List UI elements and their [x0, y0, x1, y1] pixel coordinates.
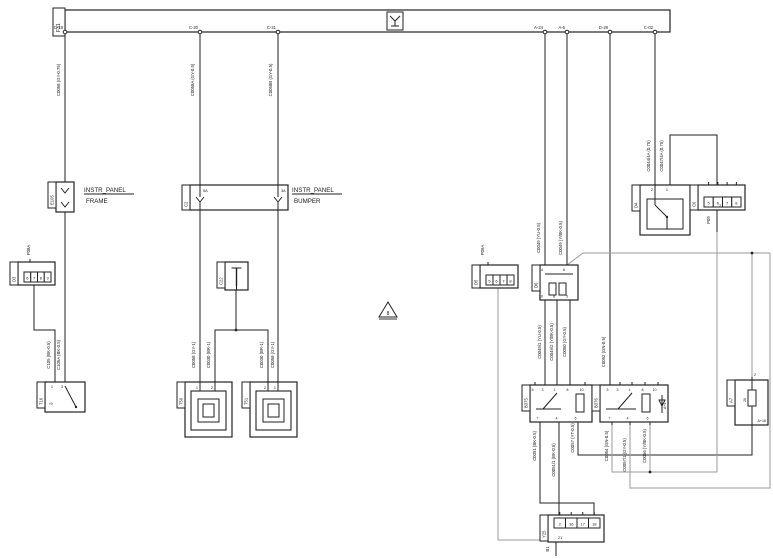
pin-number: 5	[532, 388, 534, 392]
pin-number: 2	[651, 188, 653, 192]
instr-panel-location: BUMPER	[294, 198, 321, 205]
component-label-t16: T16	[39, 397, 44, 405]
pin-number: 4	[541, 268, 543, 272]
wire-code-label: C105A (BK-0.5)	[56, 339, 61, 370]
pin-number: 1	[51, 385, 53, 389]
bus-pin-label: C-19	[54, 25, 64, 30]
wire-code-label: C105 (BK-0.5)	[46, 341, 51, 369]
bus-pin-label: D-28	[599, 25, 609, 30]
wire-code-label: C0057 (YT-0.5)	[570, 423, 575, 453]
pin-number: 1	[554, 388, 556, 392]
wire-code-label: C0051/1 (BK-0.5)	[551, 443, 556, 477]
component-label-b375-relay: B375	[524, 398, 529, 408]
wire-junction	[751, 252, 754, 255]
wire-code-label: C0049/2 (Y/BK-0.5)	[549, 323, 554, 361]
bus-pin-label: A-24	[534, 25, 544, 30]
reference-triangle-number: 8	[387, 311, 390, 317]
wire-code-label: C0049 (Y/BK-0.5)	[558, 220, 563, 254]
pin-number: 8	[567, 388, 569, 392]
pin-number: 6	[647, 417, 649, 421]
cell-number: 16	[569, 522, 574, 527]
pin-number: 2	[211, 386, 213, 390]
wire-code-label: P09A	[480, 245, 485, 256]
switch-contact	[75, 406, 77, 408]
wire-code-label: C0051 (BK-0.5)	[532, 431, 537, 461]
resistor-corner-label: A+16	[758, 419, 767, 423]
wire-code-label: C0044/4A (0.75)	[646, 140, 651, 172]
pin-number: 1	[196, 386, 198, 390]
pin-number: 2	[264, 386, 266, 390]
wire-code-label: C0057/1 (GY-0.5)	[622, 438, 627, 472]
component-label-b376-relay: B376	[594, 398, 599, 408]
component-label-d4: D4	[634, 202, 639, 208]
background	[0, 0, 773, 559]
bus-pin	[543, 30, 547, 34]
component-label-d3-left: D3	[12, 276, 17, 282]
pin-number: 6	[575, 417, 577, 421]
wire-code-label: C0058 (GY-0.75)	[56, 63, 61, 96]
wire-junction	[235, 329, 238, 332]
wire-code-label: C0030 (BR-1)	[259, 341, 264, 368]
bus-pin	[276, 30, 280, 34]
pin-number: 1	[666, 188, 668, 192]
wire-code-label: C0050 (GY-0.5)	[562, 326, 567, 357]
bus-pin	[198, 30, 202, 34]
wire-code-label: B1	[545, 546, 550, 552]
component-label-y25: Y25	[542, 530, 547, 538]
wire-code-label: C0058A (GY-0.5)	[190, 63, 195, 96]
bus-pin-label: C-21	[267, 25, 277, 30]
component-label-t50-lamp: T50	[179, 397, 184, 405]
wiring-diagram: F31C-19C-20C-21A-24A-6D-28C-02E105C25A3A…	[0, 0, 773, 559]
component-label-d6: D6	[534, 282, 539, 288]
bus-pin	[653, 30, 657, 34]
bus-pin-label: C-02	[644, 25, 654, 30]
wire-code-label: C0030 (BR-1)	[206, 341, 211, 368]
component-label-c22-splice: C22	[219, 277, 224, 285]
component-label-c6: C6	[692, 201, 697, 207]
wire-code-label: P08A	[26, 245, 31, 256]
pin-number: 3A	[281, 189, 286, 193]
instr-panel-title: INSTR_PANEL	[292, 187, 334, 194]
bus-pin	[63, 30, 67, 34]
wire-code-label: C0049/1 (YU-0.5)	[537, 325, 542, 359]
wire-code-label: C0058 (GY-1)	[191, 341, 196, 368]
bus-pin	[608, 30, 612, 34]
wire-code-label: C0047/4A (0.75)	[659, 140, 664, 172]
pin-number: 4	[556, 417, 558, 421]
pin-number: 10	[653, 388, 657, 392]
instr-panel-title: INSTR_PANEL	[84, 187, 126, 194]
component-label-a7-resistor: A7	[729, 397, 734, 403]
pin-number: 5	[607, 388, 609, 392]
resistor-value: 26	[743, 398, 747, 402]
component-label-d5-right: D5	[474, 279, 479, 285]
bus-pin-label: A-6	[558, 25, 565, 30]
wire-code-label: C0054 (GN-0.5)	[604, 430, 609, 461]
pin-number: 8	[642, 388, 644, 392]
pin-number: 10	[539, 295, 543, 299]
wiring-diagram-svg: F31C-19C-20C-21A-24A-6D-28C-02E105C25A3A…	[0, 0, 773, 559]
pin-number: 6	[563, 268, 565, 272]
pin-number: 3	[617, 388, 619, 392]
pin-number: 7	[609, 417, 611, 421]
relay-inner-label: A+4	[663, 403, 667, 409]
bus-pin-label: C-20	[189, 25, 199, 30]
wire-code-label: C0052 (GN-0.5)	[601, 336, 606, 367]
wire-junction	[649, 471, 652, 474]
pin-number: 1	[629, 388, 631, 392]
pin-number: 7	[537, 417, 539, 421]
wire-code-label: C0049 (YU-0.5)	[536, 222, 541, 253]
component-label-c2-bumper: C2	[184, 201, 189, 207]
wire-code-label: P09	[706, 216, 711, 224]
cell-number: 18	[592, 522, 597, 527]
wire-code-label: C0056 (Y/BK-0.5)	[642, 428, 647, 462]
pin-number: 3	[542, 388, 544, 392]
wire-code-label: C0058B (GY-0.5)	[268, 63, 273, 96]
cell-number: 17	[581, 522, 586, 527]
pin-number: 4	[627, 417, 629, 421]
component-label-e105: E105	[50, 195, 55, 205]
pin-number: 5A	[203, 189, 208, 193]
pin-number: 10	[580, 388, 584, 392]
pin-number: 21	[558, 536, 562, 540]
bus-pin	[565, 30, 569, 34]
pin-number: 21	[719, 204, 723, 208]
pin-number: 1	[274, 386, 276, 390]
component-label-t51-lamp: T51	[244, 397, 249, 405]
pin-number: 3	[61, 385, 63, 389]
wire-code-label: C0058 (GY-1)	[270, 341, 275, 368]
instr-panel-location: FRAME	[86, 198, 108, 205]
pin-number: 2	[754, 373, 756, 377]
